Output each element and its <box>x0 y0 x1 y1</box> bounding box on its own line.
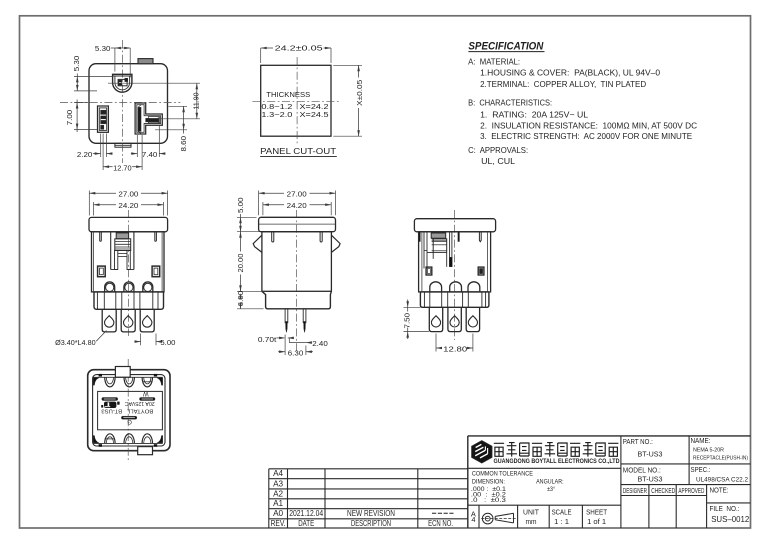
svg-text:2. INSULATION RESISTANCE: 10: 2. INSULATION RESISTANCE: 100MΩ MIN, AT … <box>480 120 697 130</box>
svg-text:2.TERMINAL: COPPER ALLOY, TI: 2.TERMINAL: COPPER ALLOY, TIN PLATED <box>480 79 646 89</box>
svg-text:SPEC.:: SPEC.: <box>691 465 711 474</box>
svg-text:11.90: 11.90 <box>193 92 200 109</box>
svg-text:BOYTALL BT-US3: BOYTALL BT-US3 <box>101 408 153 414</box>
svg-text:ANGULAR:: ANGULAR: <box>536 478 564 485</box>
svg-text:APPROVED: APPROVED <box>678 488 704 495</box>
svg-text:C: APPROVALS:: C: APPROVALS: <box>468 145 528 155</box>
svg-text:12.80: 12.80 <box>443 347 467 354</box>
svg-text:20A 125VAC: 20A 125VAC <box>125 400 155 406</box>
svg-text:2.40: 2.40 <box>312 341 328 348</box>
svg-text:DIMENSION:: DIMENSION: <box>472 478 505 485</box>
svg-text:A1: A1 <box>273 499 283 508</box>
svg-text:A: MATERIAL:: A: MATERIAL: <box>468 56 520 66</box>
svg-text:1 : 1: 1 : 1 <box>554 519 569 526</box>
svg-text:0.70t: 0.70t <box>258 337 277 344</box>
svg-text:12.70: 12.70 <box>113 165 132 172</box>
svg-text:2.20: 2.20 <box>77 152 93 159</box>
svg-text:5.00: 5.00 <box>160 340 175 347</box>
svg-text:ECN NO.: ECN NO. <box>428 519 453 528</box>
svg-text:20.00: 20.00 <box>238 253 245 272</box>
svg-text:1.HOUSING & COVER: PA(BLACK),: 1.HOUSING & COVER: PA(BLACK), UL 94V–0 <box>480 68 660 78</box>
svg-text:6.30: 6.30 <box>288 350 304 357</box>
svg-text:Ø3.40*L4.80: Ø3.40*L4.80 <box>55 340 96 347</box>
svg-text:A4: A4 <box>273 469 283 478</box>
svg-text:UNIT: UNIT <box>523 509 540 516</box>
svg-text:SPECIFICATION: SPECIFICATION <box>468 40 543 52</box>
svg-text:27.00: 27.00 <box>118 192 138 199</box>
svg-text:A3: A3 <box>273 479 283 488</box>
svg-text:2021.12.04: 2021.12.04 <box>289 509 323 518</box>
svg-text:BT-US3: BT-US3 <box>638 475 663 484</box>
svg-text:.0 : ±0.3: .0 : ±0.3 <box>471 497 506 504</box>
svg-text:24.2±0.05: 24.2±0.05 <box>275 46 323 53</box>
svg-text:3. ELECTRIC STRENGTH: AC 200: 3. ELECTRIC STRENGTH: AC 2000V FOR ONE M… <box>480 131 692 141</box>
svg-text:X±0.05: X±0.05 <box>357 80 364 106</box>
svg-text:7.00: 7.00 <box>67 110 74 126</box>
svg-text:A2: A2 <box>273 489 283 498</box>
svg-text:1.3~2.0: 1.3~2.0 <box>261 110 292 119</box>
svg-text:COMMON TOLERANCE: COMMON TOLERANCE <box>472 471 533 478</box>
svg-text:DESCRIPTION: DESCRIPTION <box>351 519 391 528</box>
svg-text:G: G <box>127 418 132 424</box>
svg-text:NAME:: NAME: <box>691 436 711 445</box>
svg-text:MODEL NO.:: MODEL NO.: <box>623 465 661 474</box>
svg-text:REV.: REV. <box>271 519 286 528</box>
svg-text:4: 4 <box>471 515 475 524</box>
svg-text:1 of 1: 1 of 1 <box>587 519 606 526</box>
svg-text:A0: A0 <box>273 509 283 518</box>
svg-text:24.20: 24.20 <box>118 203 138 210</box>
svg-text:5.30: 5.30 <box>95 46 111 53</box>
svg-text:BT-US3: BT-US3 <box>638 449 663 458</box>
svg-text:24.20: 24.20 <box>287 203 307 210</box>
svg-text:±3°: ±3° <box>547 485 555 493</box>
svg-text:W: W <box>143 390 149 396</box>
svg-text:CHECKED: CHECKED <box>651 488 675 495</box>
svg-text:X=24.5: X=24.5 <box>300 110 329 119</box>
svg-text:SHEET: SHEET <box>586 509 608 516</box>
svg-text:RECEPTACLE(PUSH-IN): RECEPTACLE(PUSH-IN) <box>693 455 748 461</box>
svg-text:5.00: 5.00 <box>238 197 245 213</box>
svg-text:mm: mm <box>526 519 537 526</box>
svg-text:NEW REVISION: NEW REVISION <box>347 509 395 518</box>
svg-text:5.30: 5.30 <box>74 56 81 72</box>
svg-text:8.60: 8.60 <box>181 136 188 152</box>
svg-text:SCALE: SCALE <box>552 509 572 516</box>
svg-text:7.50: 7.50 <box>405 313 412 329</box>
svg-text:SUS–0012: SUS–0012 <box>711 515 749 524</box>
svg-text:FILE NO.:: FILE NO.: <box>710 504 740 513</box>
svg-text:NOTE:: NOTE: <box>710 486 729 495</box>
svg-text:7.40: 7.40 <box>142 152 158 159</box>
svg-text:UL498/CSA C22.2: UL498/CSA C22.2 <box>696 477 748 484</box>
svg-text:27.00: 27.00 <box>287 192 307 199</box>
svg-text:THICKNESS: THICKNESS <box>266 90 310 99</box>
svg-text:PART NO.:: PART NO.: <box>623 437 653 446</box>
svg-text:1. RATING: 20A 125V~ UL: 1. RATING: 20A 125V~ UL <box>480 110 588 120</box>
svg-text:DESIGNER: DESIGNER <box>623 488 647 495</box>
svg-text:GUANGDONG BOYTALL ELECTRONICS: GUANGDONG BOYTALL ELECTRONICS CO.,LTD <box>494 458 620 465</box>
svg-text:DATE: DATE <box>298 519 314 528</box>
svg-text:B: CHARACTERISTICS:: B: CHARACTERISTICS: <box>468 97 552 107</box>
svg-text:UL, CUL: UL, CUL <box>481 156 515 166</box>
svg-text:NEMA 5-20R: NEMA 5-20R <box>693 448 724 454</box>
svg-text:PANEL CUT-OUT: PANEL CUT-OUT <box>260 146 337 156</box>
